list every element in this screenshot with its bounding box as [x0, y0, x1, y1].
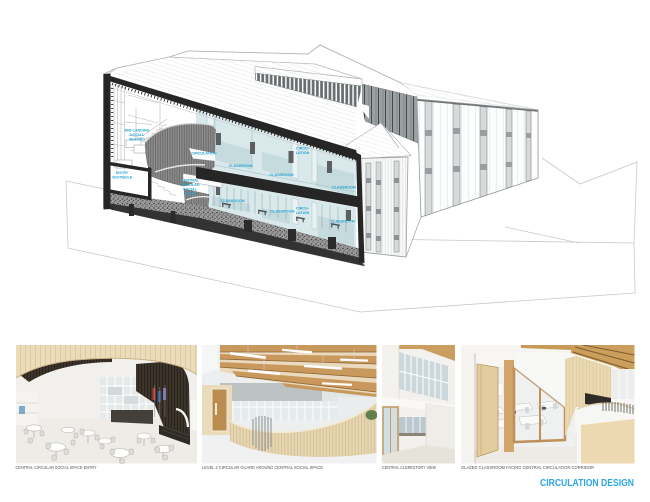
svg-text:GLAZED CLASSROOM FACING CENTRA: GLAZED CLASSROOM FACING CENTRAL CIRCULAT…	[461, 465, 594, 471]
svg-text:CENTRAL CIRCULAR SOCIAL SPACE: CENTRAL CIRCULAR SOCIAL SPACE ENTRY	[16, 465, 98, 471]
svg-text:LEVEL 2 CIRCULAR GUARD AROUND: LEVEL 2 CIRCULAR GUARD AROUND CENTRAL SO…	[202, 465, 323, 471]
svg-text:CENTRAL CLERESTORY VIEW: CENTRAL CLERESTORY VIEW	[382, 465, 436, 471]
svg-text:CIRCULATION DESIGN: CIRCULATION DESIGN	[540, 477, 634, 489]
